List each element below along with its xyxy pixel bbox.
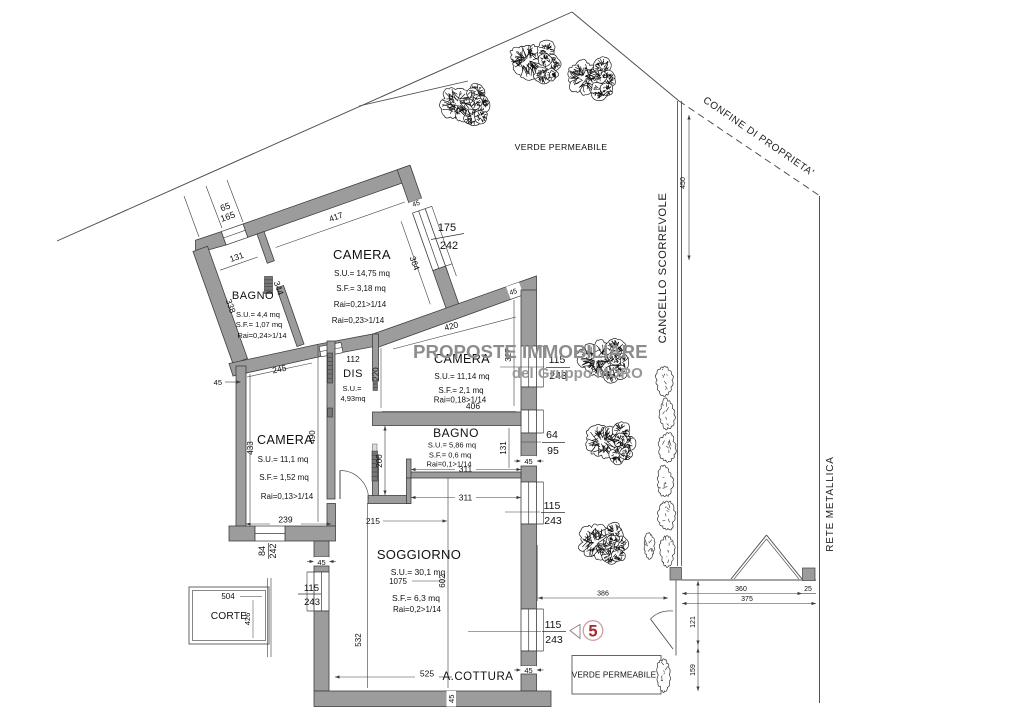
svg-text:64: 64 [546, 429, 558, 441]
svg-text:S.F.= 2,1 mq: S.F.= 2,1 mq [438, 386, 483, 395]
svg-text:131: 131 [499, 441, 508, 455]
svg-text:239: 239 [278, 515, 292, 525]
svg-text:450: 450 [680, 177, 687, 189]
svg-text:490: 490 [308, 430, 317, 444]
svg-text:45: 45 [524, 457, 532, 466]
svg-text:5: 5 [588, 623, 597, 641]
svg-text:112: 112 [346, 354, 360, 364]
svg-text:del Gruppo MORO: del Gruppo MORO [512, 365, 643, 382]
svg-text:215: 215 [366, 516, 380, 526]
svg-text:243: 243 [304, 597, 320, 608]
svg-text:CAMERA: CAMERA [257, 433, 313, 447]
svg-text:115: 115 [544, 500, 561, 512]
svg-text:159: 159 [690, 664, 697, 676]
svg-text:BAGNO: BAGNO [433, 426, 479, 440]
svg-text:220: 220 [372, 367, 381, 381]
svg-text:S.U.= 11,14 mq: S.U.= 11,14 mq [434, 372, 489, 381]
svg-text:CORTE: CORTE [211, 611, 247, 622]
svg-text:243: 243 [545, 634, 563, 646]
svg-text:S.U.= 11,1 mq: S.U.= 11,1 mq [258, 455, 309, 464]
svg-text:242: 242 [268, 543, 278, 558]
svg-text:Rai=0,24>1/14: Rai=0,24>1/14 [237, 331, 286, 340]
svg-text:311: 311 [459, 464, 473, 474]
svg-text:25: 25 [804, 586, 812, 593]
svg-text:VERDE PERMEABILE: VERDE PERMEABILE [572, 671, 657, 680]
svg-text:243: 243 [544, 515, 562, 527]
svg-text:CANCELLO SCORREVOLE: CANCELLO SCORREVOLE [657, 193, 669, 344]
svg-text:532: 532 [354, 633, 363, 647]
svg-text:S.F.= 3,18 mq: S.F.= 3,18 mq [336, 284, 386, 293]
svg-text:375: 375 [741, 596, 753, 603]
svg-text:84: 84 [257, 546, 267, 556]
svg-text:S.F.= 6,3 mq: S.F.= 6,3 mq [392, 593, 440, 603]
svg-text:311: 311 [459, 493, 473, 503]
svg-text:45: 45 [214, 378, 222, 387]
svg-text:A.COTTURA: A.COTTURA [443, 671, 514, 683]
svg-text:115: 115 [545, 619, 562, 631]
svg-text:175: 175 [438, 222, 456, 234]
svg-text:1075: 1075 [389, 577, 407, 586]
svg-text:Rai=0,21>1/14: Rai=0,21>1/14 [334, 300, 387, 309]
svg-text:PROPOSTE IMMOBILIARE: PROPOSTE IMMOBILIARE [413, 341, 648, 362]
svg-text:DIS: DIS [343, 368, 363, 380]
svg-text:121: 121 [690, 616, 697, 628]
svg-text:RETE METALLICA: RETE METALLICA [825, 456, 836, 551]
svg-text:115: 115 [304, 583, 319, 594]
svg-text:386: 386 [597, 591, 609, 598]
svg-text:S.U.= 4,4 mq: S.U.= 4,4 mq [236, 310, 280, 319]
svg-text:Rai=0,23>1/14: Rai=0,23>1/14 [332, 316, 385, 325]
svg-text:S.F.= 1,07 mq: S.F.= 1,07 mq [236, 320, 282, 329]
svg-text:BAGNO: BAGNO [232, 290, 274, 302]
svg-text:S.U.= 14,75 mq: S.U.= 14,75 mq [334, 269, 390, 278]
svg-text:CAMERA: CAMERA [333, 247, 391, 262]
svg-text:S.U.=: S.U.= [343, 384, 363, 393]
svg-text:406: 406 [466, 401, 480, 411]
svg-text:4,93mq: 4,93mq [340, 394, 365, 403]
svg-text:200: 200 [375, 454, 384, 468]
svg-text:45: 45 [447, 695, 456, 703]
svg-text:Rai=0,13>1/14: Rai=0,13>1/14 [261, 492, 314, 501]
svg-text:S.F.= 0,6 mq: S.F.= 0,6 mq [429, 451, 471, 460]
svg-text:525: 525 [420, 669, 434, 679]
svg-text:Rai=0,2>1/14: Rai=0,2>1/14 [393, 605, 442, 614]
svg-text:VERDE PERMEABILE: VERDE PERMEABILE [515, 142, 608, 152]
svg-text:433: 433 [246, 441, 255, 455]
svg-text:SOGGIORNO: SOGGIORNO [377, 547, 461, 562]
svg-text:95: 95 [547, 445, 559, 457]
svg-text:242: 242 [440, 240, 458, 252]
svg-text:S.U.= 5,86 mq: S.U.= 5,86 mq [428, 441, 476, 450]
svg-text:504: 504 [221, 592, 235, 601]
svg-text:360: 360 [735, 586, 747, 593]
svg-text:426: 426 [243, 613, 252, 626]
svg-text:S.F.= 1,52 mq: S.F.= 1,52 mq [259, 473, 309, 482]
svg-text:602: 602 [438, 574, 447, 588]
